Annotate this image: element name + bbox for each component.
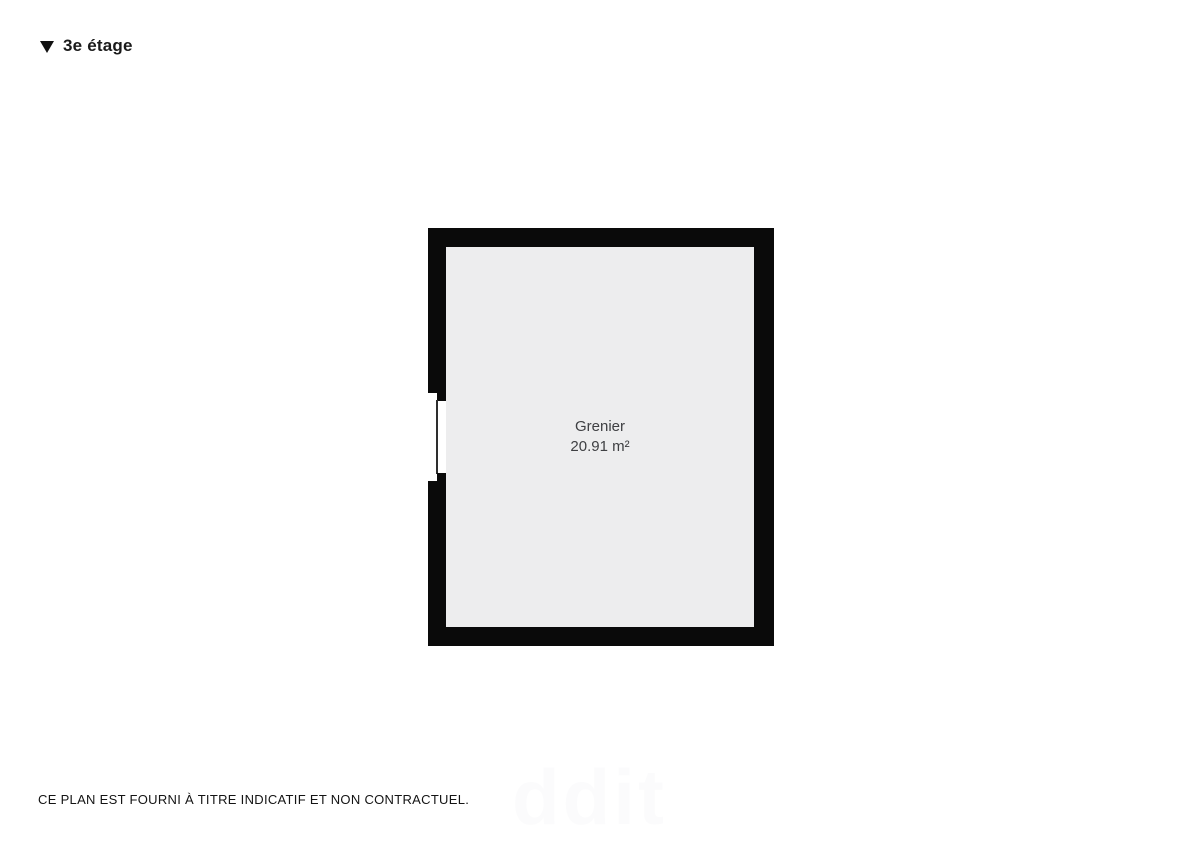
floorplan-page: { "header": { "floor_label": "3e étage",… xyxy=(0,0,1200,848)
floor-label: 3e étage xyxy=(63,36,133,56)
floor-section-toggle[interactable]: 3e étage xyxy=(40,36,133,56)
room-grenier: Grenier 20.91 m² xyxy=(446,247,754,627)
room-area: 20.91 m² xyxy=(570,437,629,457)
watermark: ddit xyxy=(512,752,667,843)
window-pane-line xyxy=(436,400,438,474)
window-jamb-bottom xyxy=(437,473,446,481)
window-symbol xyxy=(428,393,446,481)
room-label: Grenier 20.91 m² xyxy=(570,417,629,457)
triangle-down-icon xyxy=(40,41,54,53)
floorplan-canvas: Grenier 20.91 m² xyxy=(428,228,774,646)
room-name: Grenier xyxy=(570,417,629,437)
window-jamb-top xyxy=(437,393,446,401)
disclaimer-text: CE PLAN EST FOURNI À TITRE INDICATIF ET … xyxy=(38,792,469,807)
